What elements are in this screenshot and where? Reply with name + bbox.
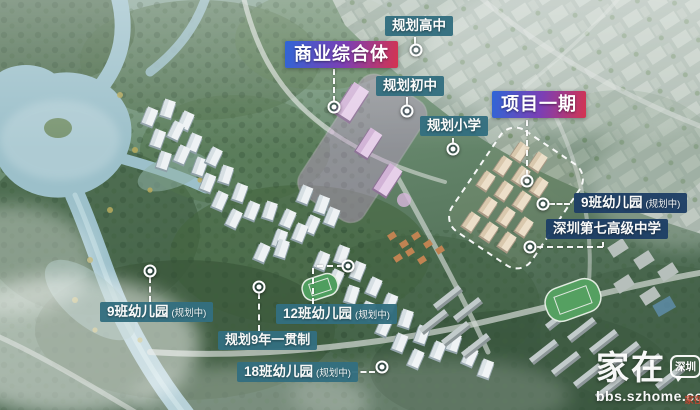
label-kindergarten-18: 18班幼儿园(规划中) bbox=[237, 362, 358, 382]
map-marker-kindergarten-12 bbox=[342, 260, 355, 273]
map-marker-kindergarten-9-left bbox=[144, 265, 157, 278]
aerial-masterplan-image: 规划高中 商业综合体 规划初中 规划小学 项目一期 9班幼儿园(规划中) 深圳第… bbox=[0, 0, 700, 410]
map-marker-planned-primary-school bbox=[447, 143, 460, 156]
leader-line bbox=[526, 120, 528, 176]
leader-line bbox=[312, 268, 314, 304]
leader-line bbox=[537, 246, 603, 248]
map-marker-nine-year-school bbox=[253, 281, 266, 294]
label-planned-middle-school: 规划初中 bbox=[376, 76, 444, 96]
watermark-brand: 家在 bbox=[596, 353, 666, 386]
label-no7-senior-high: 深圳第七高级中学 bbox=[546, 219, 668, 239]
map-marker-no7-senior-high bbox=[524, 241, 537, 254]
leader-line bbox=[149, 277, 151, 302]
label-kindergarten-9-right: 9班幼儿园(规划中) bbox=[574, 193, 687, 213]
label-commercial-complex: 商业综合体 bbox=[285, 41, 398, 68]
leader-line bbox=[333, 69, 335, 102]
map-marker-planned-middle-school bbox=[401, 105, 414, 118]
map-marker-phase-one bbox=[521, 175, 534, 188]
map-marker-kindergarten-18 bbox=[376, 361, 389, 374]
watermark-speech-bubble: 深圳 bbox=[670, 355, 700, 378]
map-marker-planned-high-school bbox=[410, 44, 423, 57]
szhome-watermark: 家在 深圳 bbs.szhome.com 家在深圳 bbox=[596, 353, 700, 406]
label-nine-year-school: 规划9年一贯制 bbox=[218, 331, 317, 350]
map-marker-kindergarten-9-right bbox=[537, 198, 550, 211]
label-kindergarten-12: 12班幼儿园(规划中) bbox=[276, 304, 397, 324]
watermark-red-stamp: 家在深圳 bbox=[685, 393, 700, 406]
map-marker-commercial-complex bbox=[328, 101, 341, 114]
leader-line bbox=[317, 265, 343, 267]
label-planned-high-school: 规划高中 bbox=[385, 16, 453, 36]
leader-line bbox=[549, 203, 570, 205]
label-kindergarten-9-left: 9班幼儿园(规划中) bbox=[100, 302, 213, 322]
label-phase-one: 项目一期 bbox=[492, 91, 586, 118]
leader-line bbox=[258, 293, 260, 331]
label-planned-primary-school: 规划小学 bbox=[420, 116, 488, 136]
